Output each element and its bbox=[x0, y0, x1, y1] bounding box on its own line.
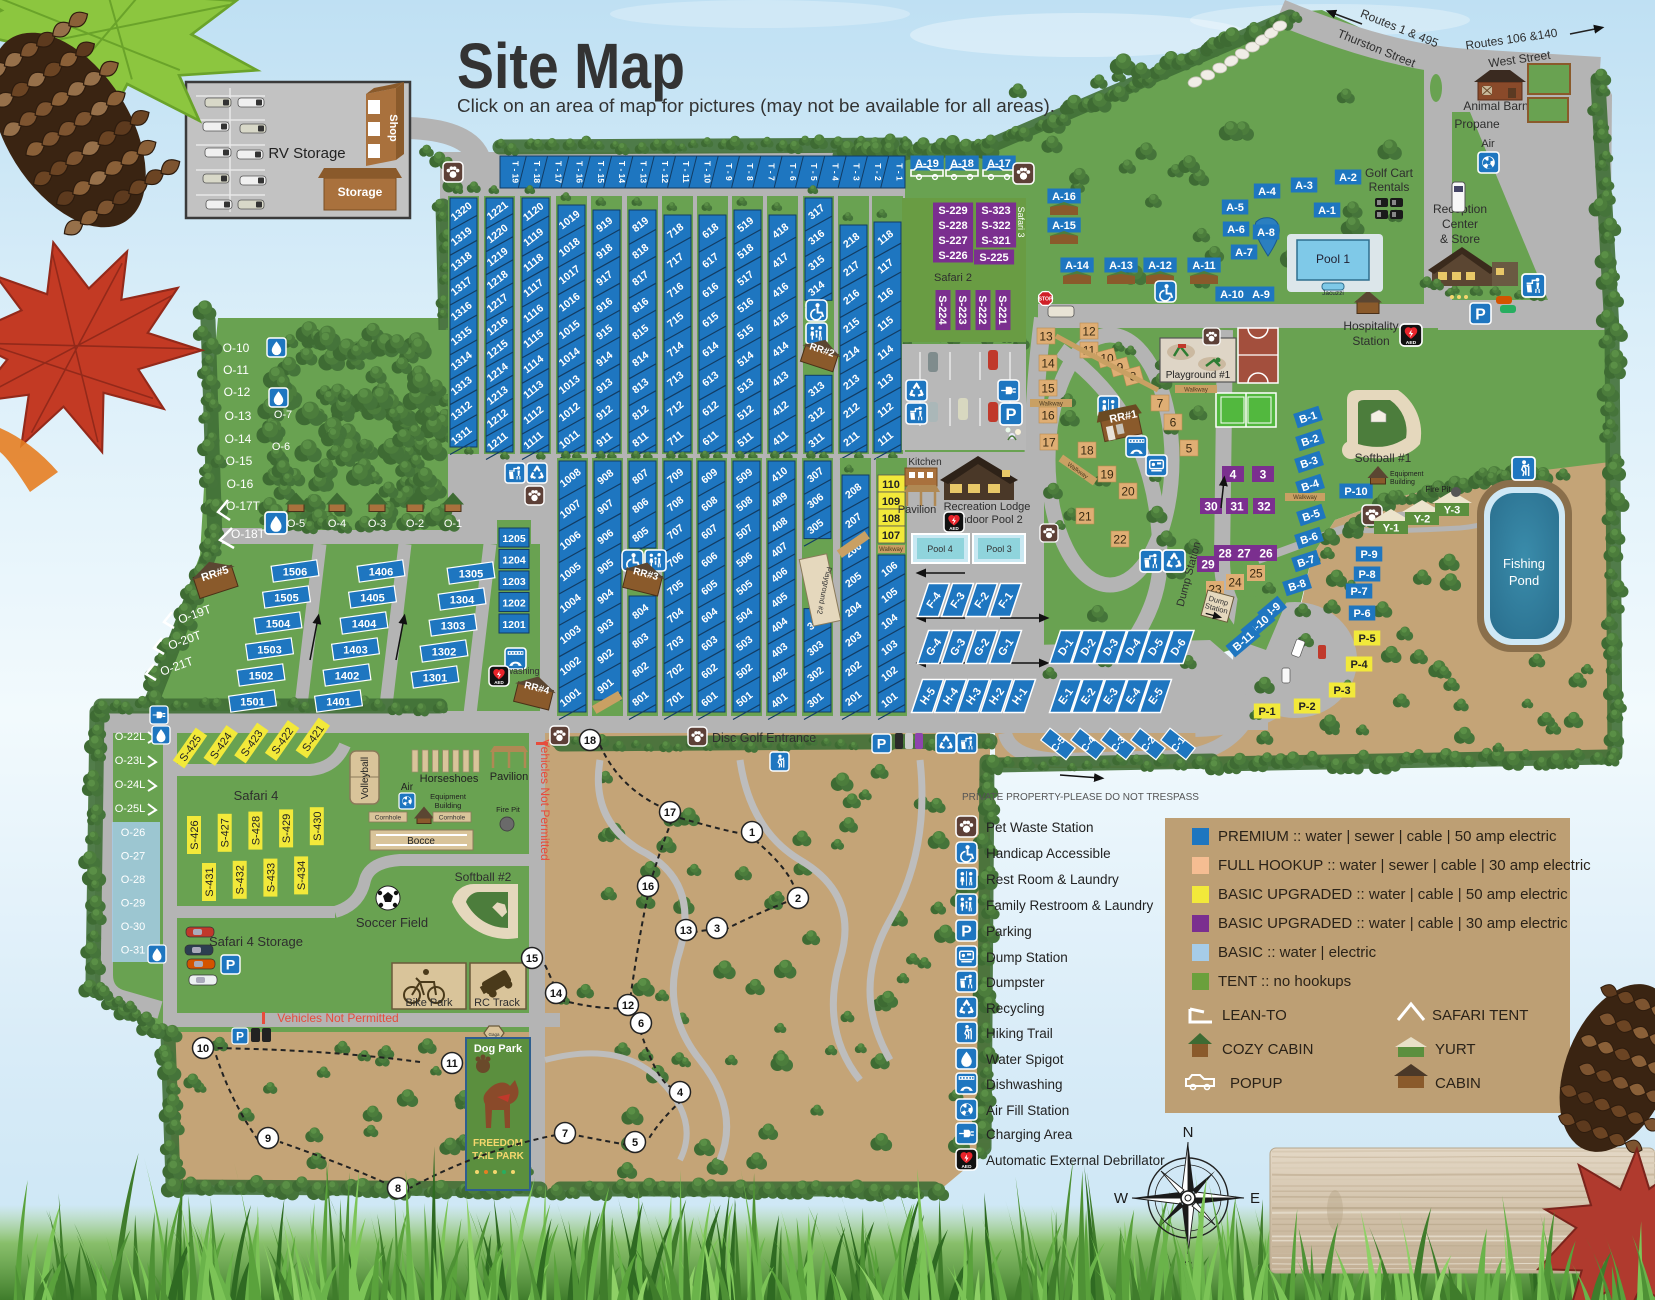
svg-text:Y-1: Y-1 bbox=[1383, 523, 1400, 535]
svg-text:1505: 1505 bbox=[274, 593, 298, 605]
svg-text:7: 7 bbox=[1157, 397, 1164, 411]
svg-text:S-323: S-323 bbox=[981, 205, 1010, 217]
svg-text:S-227: S-227 bbox=[938, 235, 967, 247]
svg-text:LEAN-TO: LEAN-TO bbox=[1222, 1007, 1287, 1024]
svg-text:T - 3: T - 3 bbox=[852, 163, 862, 181]
svg-text:A-6: A-6 bbox=[1227, 224, 1245, 236]
svg-text:Hospitality: Hospitality bbox=[1343, 319, 1398, 333]
svg-text:Disc Golf Entrance: Disc Golf Entrance bbox=[712, 731, 816, 745]
svg-text:O-27: O-27 bbox=[121, 851, 145, 863]
svg-text:T - 4: T - 4 bbox=[830, 163, 840, 181]
svg-text:O-2: O-2 bbox=[406, 518, 424, 530]
svg-text:4: 4 bbox=[1230, 468, 1237, 482]
svg-text:1502: 1502 bbox=[249, 671, 273, 683]
svg-text:Air: Air bbox=[401, 782, 414, 793]
svg-text:Jacuzzi: Jacuzzi bbox=[1322, 290, 1344, 297]
svg-text:12: 12 bbox=[1082, 325, 1096, 339]
svg-text:T - 11: T - 11 bbox=[681, 161, 691, 183]
svg-text:BASIC :: water | electric: BASIC :: water | electric bbox=[1218, 944, 1377, 961]
svg-text:1401: 1401 bbox=[326, 697, 350, 709]
svg-text:Pond: Pond bbox=[1509, 573, 1539, 588]
svg-text:3: 3 bbox=[1260, 468, 1267, 482]
svg-text:Parking: Parking bbox=[986, 924, 1032, 939]
svg-text:T - 15: T - 15 bbox=[596, 161, 606, 183]
svg-text:Walkway: Walkway bbox=[1039, 402, 1063, 408]
svg-text:2: 2 bbox=[795, 893, 801, 905]
svg-text:Softball #1: Softball #1 bbox=[1355, 451, 1412, 465]
svg-text:COZY CABIN: COZY CABIN bbox=[1222, 1041, 1313, 1058]
svg-text:Safari 2: Safari 2 bbox=[934, 272, 972, 284]
svg-text:Fire Pit: Fire Pit bbox=[496, 805, 521, 814]
svg-text:W: W bbox=[1114, 1190, 1129, 1207]
svg-text:Propane: Propane bbox=[1454, 117, 1500, 131]
svg-text:1304: 1304 bbox=[450, 595, 475, 607]
svg-text:O-4: O-4 bbox=[328, 518, 346, 530]
svg-text:& Store: & Store bbox=[1440, 232, 1480, 246]
svg-text:S-229: S-229 bbox=[938, 205, 967, 217]
svg-text:O-15: O-15 bbox=[226, 454, 253, 468]
svg-text:TENT :: no hookups: TENT :: no hookups bbox=[1218, 973, 1351, 990]
svg-text:Recreation Lodge: Recreation Lodge bbox=[944, 501, 1031, 513]
svg-text:Walkway: Walkway bbox=[1184, 388, 1208, 394]
svg-text:Gaga: Gaga bbox=[488, 1032, 500, 1037]
svg-text:O-12: O-12 bbox=[224, 385, 251, 399]
svg-text:O-29: O-29 bbox=[121, 898, 145, 910]
svg-text:T - 1: T - 1 bbox=[894, 163, 904, 181]
svg-text:5: 5 bbox=[1186, 442, 1193, 456]
svg-text:O-10: O-10 bbox=[223, 341, 250, 355]
svg-text:1501: 1501 bbox=[240, 697, 264, 709]
svg-text:O-5: O-5 bbox=[287, 518, 305, 530]
svg-text:16: 16 bbox=[642, 881, 654, 893]
svg-text:1205: 1205 bbox=[502, 533, 526, 545]
svg-text:Pool 3: Pool 3 bbox=[986, 544, 1012, 554]
svg-text:1305: 1305 bbox=[459, 569, 483, 581]
svg-text:25: 25 bbox=[1249, 567, 1263, 581]
svg-text:A-19: A-19 bbox=[915, 158, 939, 170]
svg-text:A-5: A-5 bbox=[1226, 202, 1244, 214]
svg-text:S-427: S-427 bbox=[220, 818, 232, 847]
svg-text:Walkway: Walkway bbox=[1293, 495, 1317, 501]
svg-text:S-225: S-225 bbox=[979, 252, 1008, 264]
svg-text:Pool 4: Pool 4 bbox=[927, 544, 953, 554]
svg-text:Water Spigot: Water Spigot bbox=[986, 1052, 1064, 1067]
svg-text:1506: 1506 bbox=[283, 567, 307, 579]
svg-text:P-3: P-3 bbox=[1333, 685, 1350, 697]
svg-text:1406: 1406 bbox=[369, 567, 393, 579]
svg-text:Safari 4: Safari 4 bbox=[234, 788, 279, 803]
svg-text:O-26: O-26 bbox=[121, 827, 145, 839]
svg-text:Recycling: Recycling bbox=[986, 1001, 1045, 1016]
svg-text:14: 14 bbox=[550, 988, 563, 1000]
svg-text:Equipment: Equipment bbox=[430, 792, 467, 801]
svg-text:16: 16 bbox=[1041, 409, 1055, 423]
svg-text:A-16: A-16 bbox=[1052, 191, 1076, 203]
svg-text:1301: 1301 bbox=[423, 673, 447, 685]
svg-text:SAFARI TENT: SAFARI TENT bbox=[1432, 1007, 1528, 1024]
svg-text:T - 16: T - 16 bbox=[575, 161, 585, 183]
svg-text:A-3: A-3 bbox=[1295, 180, 1313, 192]
svg-text:1404: 1404 bbox=[352, 619, 377, 631]
svg-text:S-431: S-431 bbox=[204, 867, 216, 896]
svg-text:Horseshoes: Horseshoes bbox=[420, 773, 479, 785]
svg-text:A-12: A-12 bbox=[1148, 260, 1172, 272]
svg-text:S-224: S-224 bbox=[936, 295, 948, 325]
svg-text:1202: 1202 bbox=[502, 598, 526, 610]
svg-text:Pavilion: Pavilion bbox=[898, 504, 937, 516]
svg-text:1504: 1504 bbox=[266, 619, 291, 631]
svg-text:Playground #1: Playground #1 bbox=[1166, 370, 1231, 381]
svg-text:5: 5 bbox=[632, 1137, 638, 1149]
svg-text:Safari 4 Storage: Safari 4 Storage bbox=[209, 934, 303, 949]
svg-text:Building: Building bbox=[435, 801, 462, 810]
svg-text:Bike Park: Bike Park bbox=[405, 997, 453, 1009]
svg-text:T - 6: T - 6 bbox=[788, 163, 798, 181]
svg-text:14: 14 bbox=[1041, 357, 1055, 371]
svg-text:3: 3 bbox=[714, 923, 720, 935]
svg-text:1204: 1204 bbox=[502, 555, 526, 567]
svg-text:22: 22 bbox=[1113, 533, 1127, 547]
svg-text:29: 29 bbox=[1201, 558, 1215, 572]
svg-text:1303: 1303 bbox=[441, 621, 465, 633]
svg-text:Walkway: Walkway bbox=[879, 547, 903, 553]
svg-text:O-6: O-6 bbox=[272, 441, 290, 453]
svg-text:13: 13 bbox=[680, 925, 692, 937]
svg-text:TAIL PARK: TAIL PARK bbox=[472, 1151, 524, 1162]
svg-text:P-9: P-9 bbox=[1360, 549, 1377, 561]
svg-text:O-13: O-13 bbox=[225, 409, 252, 423]
svg-text:RC Track: RC Track bbox=[474, 997, 520, 1009]
svg-text:P-7: P-7 bbox=[1350, 586, 1367, 598]
svg-text:O-11: O-11 bbox=[223, 363, 249, 377]
svg-text:P-1: P-1 bbox=[1258, 706, 1275, 718]
svg-text:T - 14: T - 14 bbox=[617, 161, 627, 183]
svg-text:1402: 1402 bbox=[335, 671, 359, 683]
svg-text:Charging Area: Charging Area bbox=[986, 1127, 1073, 1142]
svg-text:18: 18 bbox=[584, 735, 596, 747]
svg-text:12: 12 bbox=[622, 1000, 634, 1012]
svg-text:T - 19: T - 19 bbox=[511, 161, 521, 183]
svg-text:1403: 1403 bbox=[343, 645, 367, 657]
svg-text:32: 32 bbox=[1257, 500, 1271, 514]
svg-text:BASIC UPGRADED :: water | cabl: BASIC UPGRADED :: water | cable | 50 amp… bbox=[1218, 886, 1568, 903]
svg-text:S-226: S-226 bbox=[938, 250, 967, 262]
svg-text:Animal Barn: Animal Barn bbox=[1463, 99, 1528, 113]
svg-text:24: 24 bbox=[1228, 576, 1242, 590]
svg-text:Dog Park: Dog Park bbox=[474, 1043, 523, 1055]
svg-text:Click on an area of map for pi: Click on an area of map for pictures (ma… bbox=[457, 96, 1055, 116]
svg-text:O-14: O-14 bbox=[225, 432, 252, 446]
svg-text:S-322: S-322 bbox=[981, 220, 1010, 232]
svg-text:A-11: A-11 bbox=[1192, 260, 1215, 272]
svg-text:A-13: A-13 bbox=[1109, 260, 1133, 272]
svg-text:107: 107 bbox=[882, 530, 900, 542]
svg-text:4: 4 bbox=[677, 1087, 684, 1099]
svg-text:Pool 1: Pool 1 bbox=[1316, 252, 1350, 266]
svg-text:Shop: Shop bbox=[387, 114, 399, 142]
svg-text:Fire Pit: Fire Pit bbox=[1425, 485, 1451, 494]
svg-text:T - 9: T - 9 bbox=[724, 163, 734, 181]
svg-text:S-223: S-223 bbox=[956, 295, 968, 324]
svg-text:O-1: O-1 bbox=[444, 518, 462, 530]
svg-text:1302: 1302 bbox=[432, 647, 456, 659]
svg-text:O-23L: O-23L bbox=[115, 755, 146, 767]
svg-text:Volleyball: Volleyball bbox=[360, 757, 371, 799]
svg-text:Station: Station bbox=[1352, 334, 1389, 348]
svg-text:T - 12: T - 12 bbox=[660, 161, 670, 183]
svg-text:Dishwashing: Dishwashing bbox=[986, 1077, 1063, 1092]
svg-text:Rest Room & Laundry: Rest Room & Laundry bbox=[986, 872, 1119, 887]
svg-text:T - 10: T - 10 bbox=[703, 161, 713, 183]
svg-text:Hiking Trail: Hiking Trail bbox=[986, 1026, 1053, 1041]
svg-text:Vehicles Not Permitted: Vehicles Not Permitted bbox=[277, 1011, 398, 1025]
svg-text:P-4: P-4 bbox=[1350, 659, 1368, 671]
svg-text:S-429: S-429 bbox=[281, 814, 293, 843]
svg-text:Building: Building bbox=[1390, 479, 1415, 486]
svg-text:FULL HOOKUP :: water | sewer |: FULL HOOKUP :: water | sewer | cable | 3… bbox=[1218, 857, 1591, 874]
svg-text:A-18: A-18 bbox=[950, 158, 974, 170]
svg-text:BASIC UPGRADED :: water | cabl: BASIC UPGRADED :: water | cable | 30 amp… bbox=[1218, 915, 1568, 932]
svg-text:Indoor Pool 2: Indoor Pool 2 bbox=[957, 514, 1022, 526]
svg-text:S-434: S-434 bbox=[296, 861, 308, 890]
svg-text:26: 26 bbox=[1259, 547, 1273, 561]
svg-text:Equipment: Equipment bbox=[1390, 471, 1424, 478]
svg-text:1: 1 bbox=[749, 827, 755, 839]
svg-text:Safari 3: Safari 3 bbox=[1016, 206, 1026, 237]
svg-text:Rentals: Rentals bbox=[1369, 180, 1410, 194]
svg-text:6: 6 bbox=[638, 1018, 644, 1030]
svg-text:10: 10 bbox=[197, 1043, 209, 1055]
svg-text:21: 21 bbox=[1078, 510, 1092, 524]
svg-text:S-432: S-432 bbox=[235, 865, 247, 894]
svg-text:30: 30 bbox=[1204, 500, 1218, 514]
svg-text:A-7: A-7 bbox=[1235, 247, 1253, 259]
svg-text:13: 13 bbox=[1039, 330, 1053, 344]
svg-text:S-222: S-222 bbox=[976, 295, 988, 324]
svg-text:Dumpster: Dumpster bbox=[986, 975, 1045, 990]
svg-text:Center: Center bbox=[1442, 217, 1478, 231]
svg-text:A-15: A-15 bbox=[1052, 220, 1076, 232]
svg-text:20: 20 bbox=[1121, 485, 1135, 499]
svg-text:1203: 1203 bbox=[502, 576, 526, 588]
svg-text:POPUP: POPUP bbox=[1230, 1075, 1283, 1092]
svg-text:T - 13: T - 13 bbox=[639, 161, 649, 183]
svg-text:31: 31 bbox=[1230, 500, 1244, 514]
svg-text:Vehicles Not Permitted: Vehicles Not Permitted bbox=[538, 739, 552, 860]
svg-text:O-16: O-16 bbox=[227, 477, 254, 491]
svg-text:8: 8 bbox=[395, 1183, 401, 1195]
svg-text:E: E bbox=[1250, 1190, 1260, 1207]
svg-text:FREEDOM: FREEDOM bbox=[473, 1138, 523, 1149]
svg-text:Bocce: Bocce bbox=[407, 836, 435, 847]
svg-text:Dump Station: Dump Station bbox=[986, 950, 1068, 965]
svg-text:Air Fill Station: Air Fill Station bbox=[986, 1103, 1069, 1118]
svg-text:A-4: A-4 bbox=[1258, 186, 1277, 198]
svg-text:O-30: O-30 bbox=[121, 921, 145, 933]
svg-text:Cornhole: Cornhole bbox=[439, 815, 466, 822]
svg-text:T - 5: T - 5 bbox=[809, 163, 819, 181]
svg-text:S-321: S-321 bbox=[981, 235, 1010, 247]
svg-text:O-3: O-3 bbox=[368, 518, 386, 530]
svg-text:110: 110 bbox=[882, 479, 900, 491]
svg-text:O-22L: O-22L bbox=[115, 731, 146, 743]
svg-text:6: 6 bbox=[1170, 416, 1177, 430]
svg-text:S-426: S-426 bbox=[189, 820, 201, 849]
svg-text:P-6: P-6 bbox=[1353, 608, 1370, 620]
svg-text:O-18T: O-18T bbox=[231, 527, 266, 541]
svg-text:Pet Waste Station: Pet Waste Station bbox=[986, 820, 1094, 835]
svg-text:A-1: A-1 bbox=[1318, 205, 1336, 217]
svg-text:T - 8: T - 8 bbox=[745, 163, 755, 181]
svg-text:Handicap Accessible: Handicap Accessible bbox=[986, 846, 1111, 861]
svg-text:P-8: P-8 bbox=[1358, 569, 1375, 581]
svg-text:RV Storage: RV Storage bbox=[268, 145, 345, 162]
svg-text:O-31: O-31 bbox=[121, 945, 145, 957]
svg-text:S-433: S-433 bbox=[265, 863, 277, 892]
svg-text:28: 28 bbox=[1218, 547, 1232, 561]
svg-text:Storage: Storage bbox=[338, 185, 383, 199]
svg-text:T - 17: T - 17 bbox=[553, 161, 563, 183]
svg-text:A-9: A-9 bbox=[1252, 289, 1270, 301]
svg-text:15: 15 bbox=[1041, 382, 1055, 396]
svg-text:Fishing: Fishing bbox=[1503, 556, 1545, 571]
svg-text:Softball #2: Softball #2 bbox=[455, 870, 512, 884]
svg-text:T - 2: T - 2 bbox=[873, 163, 883, 181]
svg-text:27: 27 bbox=[1237, 547, 1251, 561]
svg-text:1405: 1405 bbox=[360, 593, 384, 605]
svg-text:19: 19 bbox=[1100, 468, 1114, 482]
svg-text:Site Map: Site Map bbox=[457, 30, 685, 102]
svg-text:Automatic External Debrillator: Automatic External Debrillator bbox=[986, 1153, 1165, 1168]
svg-text:O-28: O-28 bbox=[121, 874, 145, 886]
svg-text:Pavilion: Pavilion bbox=[490, 771, 529, 783]
svg-text:A-2: A-2 bbox=[1339, 172, 1357, 184]
svg-text:17: 17 bbox=[1042, 436, 1056, 450]
svg-text:S-430: S-430 bbox=[312, 812, 324, 841]
svg-text:O-17T: O-17T bbox=[226, 499, 261, 513]
svg-text:1503: 1503 bbox=[257, 645, 281, 657]
svg-text:PRIVATE PROPERTY-PLEASE DO NOT: PRIVATE PROPERTY-PLEASE DO NOT TRESPASS bbox=[962, 792, 1199, 803]
svg-text:O-7: O-7 bbox=[274, 409, 292, 421]
svg-text:O-24L: O-24L bbox=[115, 779, 146, 791]
svg-text:1201: 1201 bbox=[502, 619, 526, 631]
svg-text:Golf Cart: Golf Cart bbox=[1365, 166, 1414, 180]
svg-text:P-2: P-2 bbox=[1298, 701, 1315, 713]
svg-text:Family Restroom & Laundry: Family Restroom & Laundry bbox=[986, 898, 1154, 913]
svg-text:Kitchen: Kitchen bbox=[908, 457, 941, 468]
svg-text:Y-3: Y-3 bbox=[1444, 505, 1461, 517]
svg-text:CABIN: CABIN bbox=[1435, 1075, 1481, 1092]
svg-text:PREMIUM :: water | sewer | cab: PREMIUM :: water | sewer | cable | 50 am… bbox=[1218, 828, 1557, 845]
svg-text:A-14: A-14 bbox=[1065, 260, 1090, 272]
svg-text:O-25L: O-25L bbox=[115, 803, 146, 815]
svg-text:17: 17 bbox=[664, 807, 676, 819]
svg-text:15: 15 bbox=[526, 953, 538, 965]
svg-text:Y-2: Y-2 bbox=[1414, 514, 1431, 526]
svg-text:P-10: P-10 bbox=[1344, 486, 1367, 498]
svg-text:S-221: S-221 bbox=[996, 295, 1008, 324]
svg-text:T - 18: T - 18 bbox=[532, 161, 542, 183]
svg-text:N: N bbox=[1183, 1124, 1194, 1141]
svg-text:9: 9 bbox=[265, 1133, 271, 1145]
svg-text:S-228: S-228 bbox=[938, 220, 967, 232]
svg-text:A-8: A-8 bbox=[1257, 227, 1275, 239]
svg-text:T - 7: T - 7 bbox=[766, 163, 776, 181]
svg-text:YURT: YURT bbox=[1435, 1041, 1476, 1058]
svg-text:P-5: P-5 bbox=[1358, 633, 1375, 645]
svg-text:18: 18 bbox=[1080, 444, 1094, 458]
svg-text:A-17: A-17 bbox=[987, 158, 1011, 170]
svg-text:11: 11 bbox=[446, 1058, 458, 1070]
svg-text:A-10: A-10 bbox=[1220, 289, 1244, 301]
svg-text:Air: Air bbox=[1481, 138, 1495, 150]
svg-text:Soccer Field: Soccer Field bbox=[356, 915, 428, 930]
svg-text:7: 7 bbox=[562, 1128, 568, 1140]
svg-text:S-428: S-428 bbox=[250, 816, 262, 845]
svg-text:Cornhole: Cornhole bbox=[375, 815, 402, 822]
